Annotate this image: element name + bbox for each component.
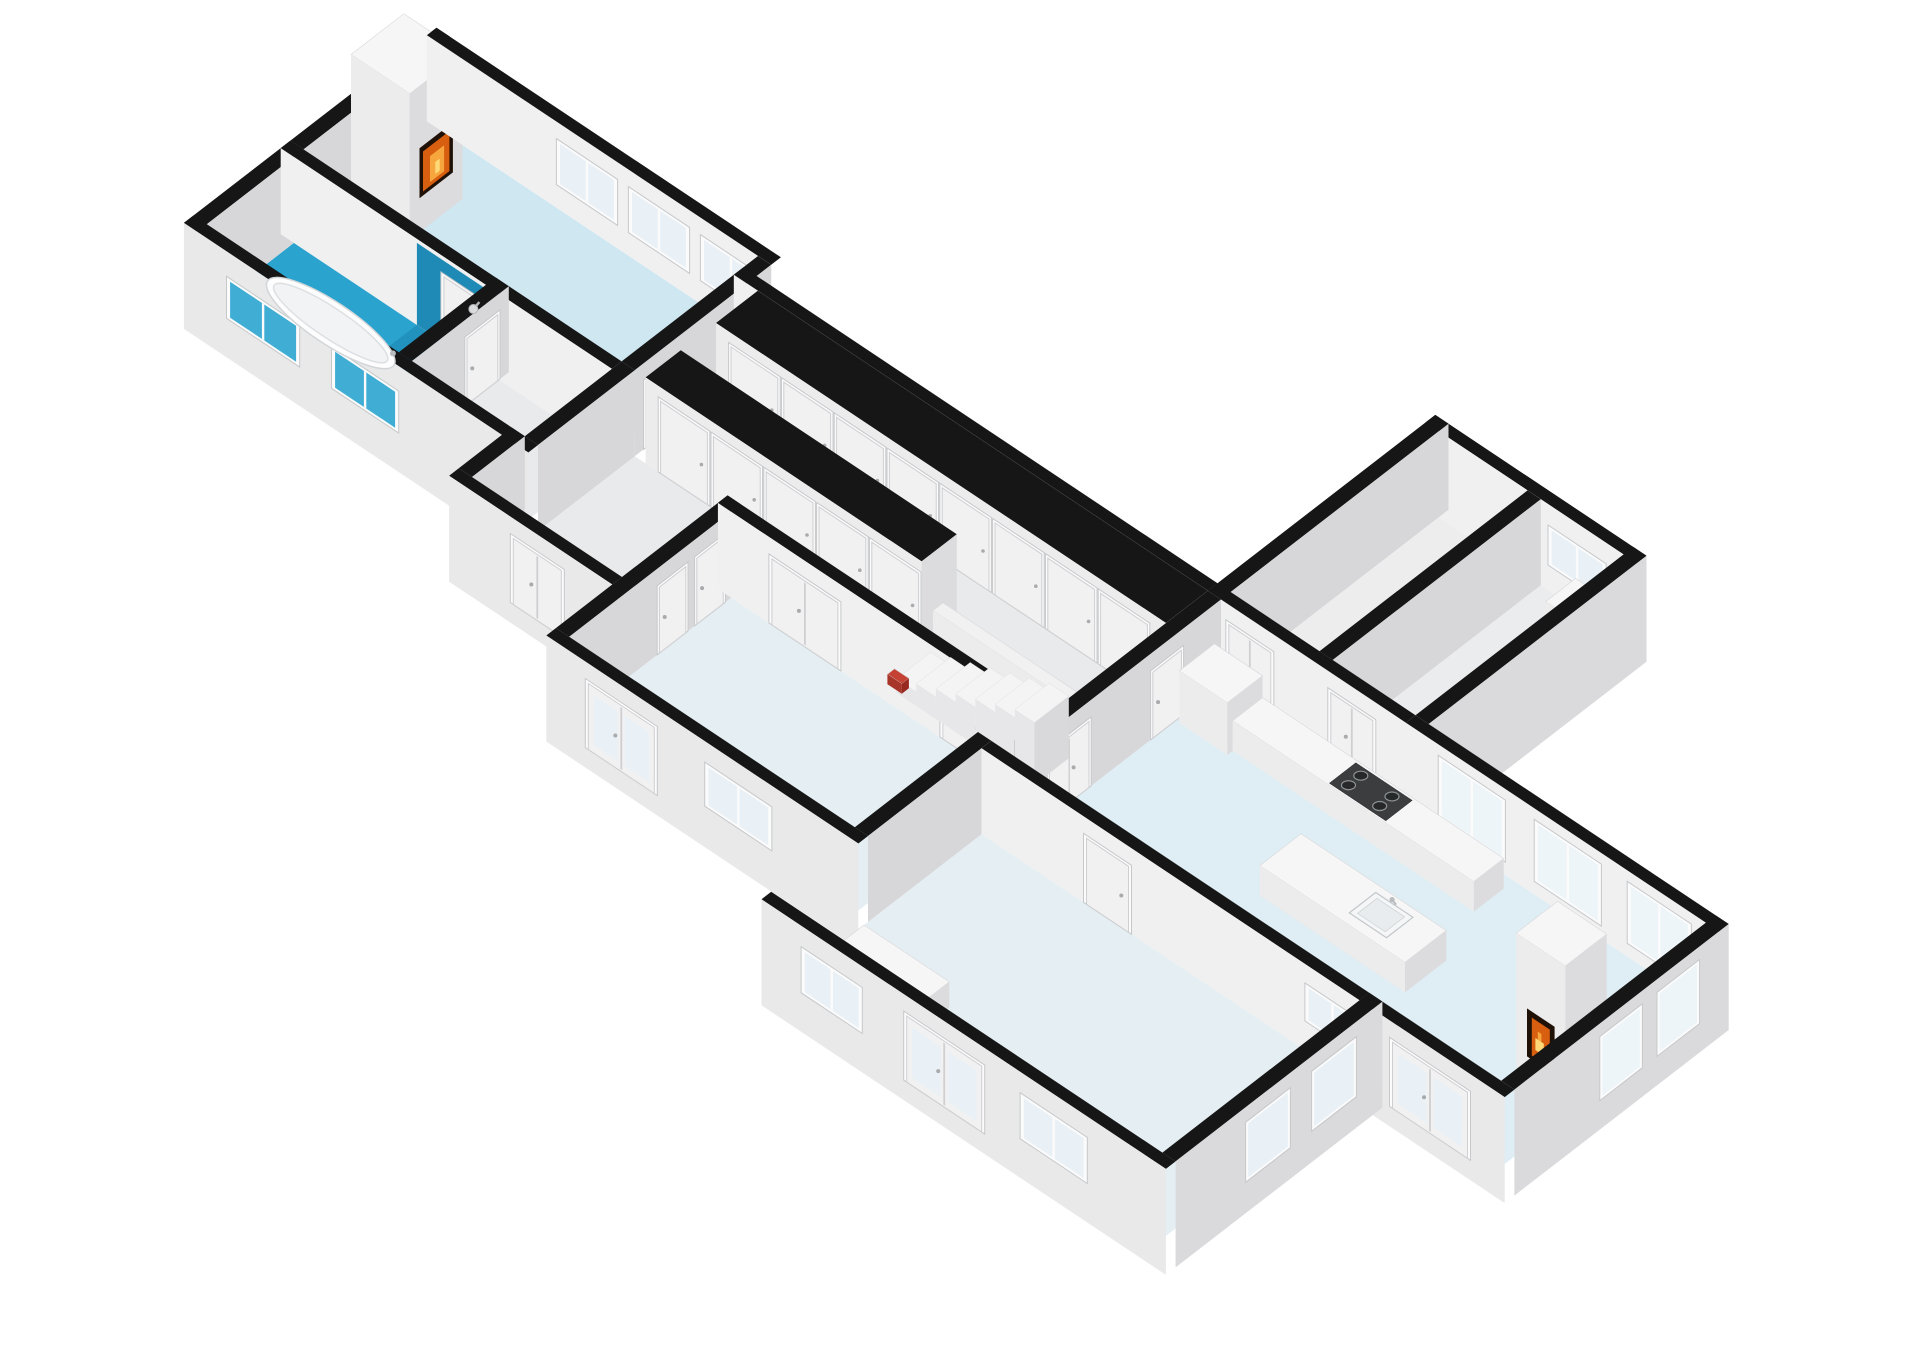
floor-plan-page: isometric-3d-floor-plan [0, 0, 1920, 1358]
floor-plan-canvas [0, 0, 1920, 1358]
